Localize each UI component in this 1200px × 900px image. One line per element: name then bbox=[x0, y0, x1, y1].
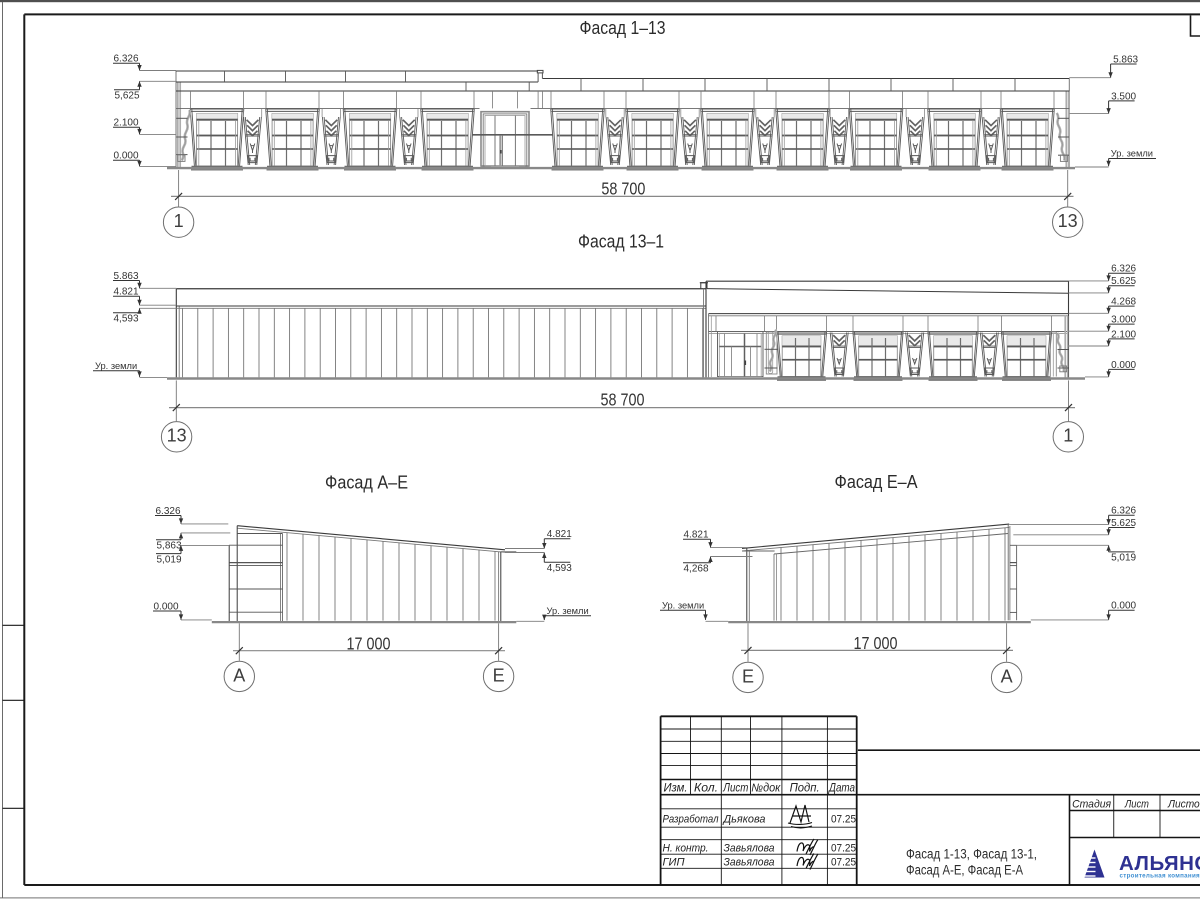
svg-text:Завьялова: Завьялова bbox=[724, 842, 775, 854]
svg-text:3.000: 3.000 bbox=[1111, 315, 1136, 326]
svg-text:строительная компания: строительная компания bbox=[1120, 873, 1200, 880]
svg-text:0.000: 0.000 bbox=[114, 151, 139, 162]
svg-text:Ур. земли: Ур. земли bbox=[662, 600, 704, 610]
svg-text:А: А bbox=[1001, 666, 1013, 686]
svg-text:4,593: 4,593 bbox=[114, 314, 139, 325]
svg-text:5,625: 5,625 bbox=[115, 91, 140, 102]
svg-text:5.625: 5.625 bbox=[1111, 518, 1136, 529]
svg-text:Фасад 1-13, Фасад 13-1,: Фасад 1-13, Фасад 13-1, bbox=[906, 847, 1037, 862]
svg-text:Дьякова: Дьякова bbox=[722, 813, 766, 825]
svg-text:4,593: 4,593 bbox=[547, 563, 572, 574]
svg-text:2.100: 2.100 bbox=[1111, 329, 1136, 340]
svg-text:Листов: Листов bbox=[1167, 798, 1200, 810]
svg-text:5.863: 5.863 bbox=[1113, 54, 1138, 65]
svg-text:6.326: 6.326 bbox=[114, 54, 139, 65]
svg-text:Фасад А-Е, Фасад Е-А: Фасад А-Е, Фасад Е-А bbox=[906, 863, 1023, 878]
svg-text:Разработал: Разработал bbox=[663, 813, 719, 825]
svg-text:Ур. земли: Ур. земли bbox=[547, 606, 589, 616]
svg-text:5.625: 5.625 bbox=[1111, 276, 1136, 287]
svg-text:07.25: 07.25 bbox=[831, 842, 856, 854]
svg-text:0.000: 0.000 bbox=[1111, 601, 1136, 612]
svg-text:1: 1 bbox=[1063, 426, 1073, 446]
svg-text:2.100: 2.100 bbox=[114, 118, 139, 129]
svg-text:58 700: 58 700 bbox=[601, 179, 645, 199]
svg-text:Фасад 1–13: Фасад 1–13 bbox=[580, 17, 666, 38]
svg-text:5,019: 5,019 bbox=[1111, 553, 1136, 564]
svg-text:4.821: 4.821 bbox=[547, 529, 572, 540]
svg-text:58 700: 58 700 bbox=[601, 390, 645, 410]
svg-text:4.268: 4.268 bbox=[1111, 297, 1136, 308]
svg-text:А: А bbox=[233, 665, 245, 685]
svg-text:13: 13 bbox=[1058, 211, 1078, 231]
svg-text:5,019: 5,019 bbox=[157, 554, 182, 565]
svg-text:1: 1 bbox=[174, 211, 184, 231]
svg-text:17 000: 17 000 bbox=[347, 633, 391, 653]
svg-text:0.000: 0.000 bbox=[1111, 360, 1136, 371]
svg-text:Подп.: Подп. bbox=[790, 783, 820, 795]
svg-text:4.821: 4.821 bbox=[114, 287, 139, 298]
svg-text:07.25: 07.25 bbox=[831, 856, 856, 868]
svg-text:ГИП: ГИП bbox=[663, 856, 685, 868]
svg-text:Е: Е bbox=[742, 666, 754, 686]
svg-text:№док: №док bbox=[751, 783, 781, 795]
svg-text:07.25: 07.25 bbox=[831, 813, 856, 825]
svg-text:4.821: 4.821 bbox=[684, 530, 709, 541]
svg-text:5,863: 5,863 bbox=[157, 541, 182, 552]
svg-text:Изм.: Изм. bbox=[664, 783, 688, 795]
svg-text:Ур. земли: Ур. земли bbox=[95, 361, 137, 371]
svg-text:3.500: 3.500 bbox=[1111, 91, 1136, 102]
svg-text:Завьялова: Завьялова bbox=[724, 856, 775, 868]
svg-text:Н. контр.: Н. контр. bbox=[663, 842, 709, 854]
svg-text:АЛЬЯНС: АЛЬЯНС bbox=[1119, 852, 1200, 875]
svg-text:4,268: 4,268 bbox=[684, 564, 709, 575]
svg-text:Фасад А–Е: Фасад А–Е bbox=[325, 471, 408, 492]
svg-text:Е: Е bbox=[493, 665, 505, 685]
svg-text:6.326: 6.326 bbox=[156, 506, 181, 517]
svg-text:Кол.: Кол. bbox=[694, 783, 718, 795]
svg-text:5.863: 5.863 bbox=[114, 271, 139, 282]
svg-text:Ур. земли: Ур. земли bbox=[1111, 149, 1153, 159]
svg-text:Лист: Лист bbox=[722, 783, 748, 795]
svg-text:0.000: 0.000 bbox=[154, 601, 179, 612]
svg-text:Лист: Лист bbox=[1124, 798, 1149, 810]
svg-text:17 000: 17 000 bbox=[854, 633, 898, 653]
svg-text:6.326: 6.326 bbox=[1111, 264, 1136, 275]
svg-text:Фасад Е–А: Фасад Е–А bbox=[835, 471, 919, 492]
svg-text:13: 13 bbox=[167, 426, 187, 446]
svg-text:Фасад 13–1: Фасад 13–1 bbox=[578, 231, 664, 252]
svg-text:Дата: Дата bbox=[827, 783, 855, 795]
svg-text:6.326: 6.326 bbox=[1111, 506, 1136, 517]
svg-text:Стадия: Стадия bbox=[1072, 798, 1111, 810]
